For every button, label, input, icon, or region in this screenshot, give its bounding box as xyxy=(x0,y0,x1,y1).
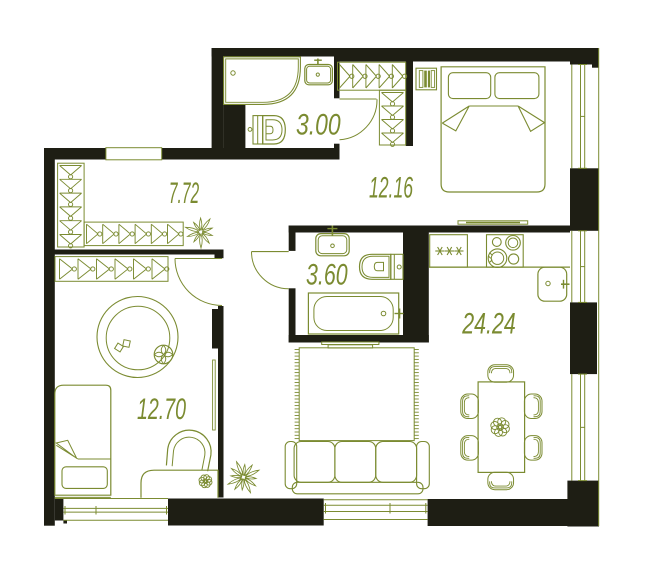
svg-text:12.70: 12.70 xyxy=(137,393,186,426)
svg-text:7.72: 7.72 xyxy=(169,177,199,210)
svg-text:24.24: 24.24 xyxy=(462,308,516,341)
svg-text:3.00: 3.00 xyxy=(296,109,341,142)
svg-text:12.16: 12.16 xyxy=(369,172,413,205)
svg-text:3.60: 3.60 xyxy=(306,259,348,292)
